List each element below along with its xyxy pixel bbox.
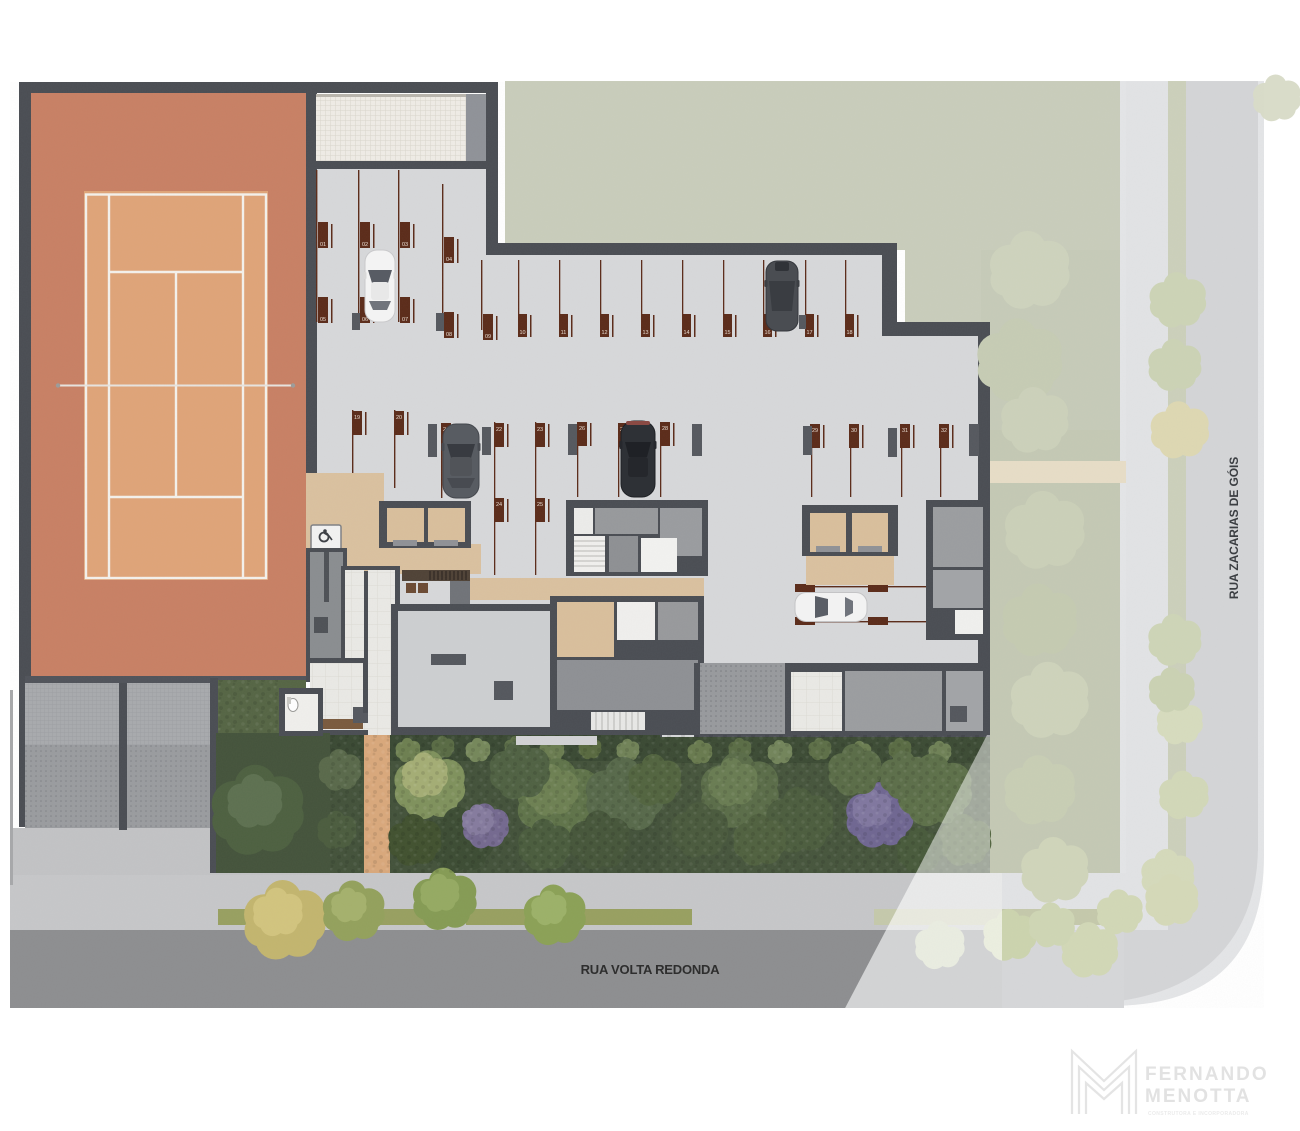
svg-text:MENOTTA: MENOTTA xyxy=(1145,1086,1252,1107)
svg-text:CONSTRUTORA E INCORPORADORA: CONSTRUTORA E INCORPORADORA xyxy=(1148,1111,1249,1117)
svg-text:RUA VOLTA REDONDA: RUA VOLTA REDONDA xyxy=(581,962,721,977)
svg-text:FERNANDO: FERNANDO xyxy=(1145,1064,1269,1085)
svg-text:RUA ZACARIAS DE GÓIS: RUA ZACARIAS DE GÓIS xyxy=(1226,457,1241,599)
